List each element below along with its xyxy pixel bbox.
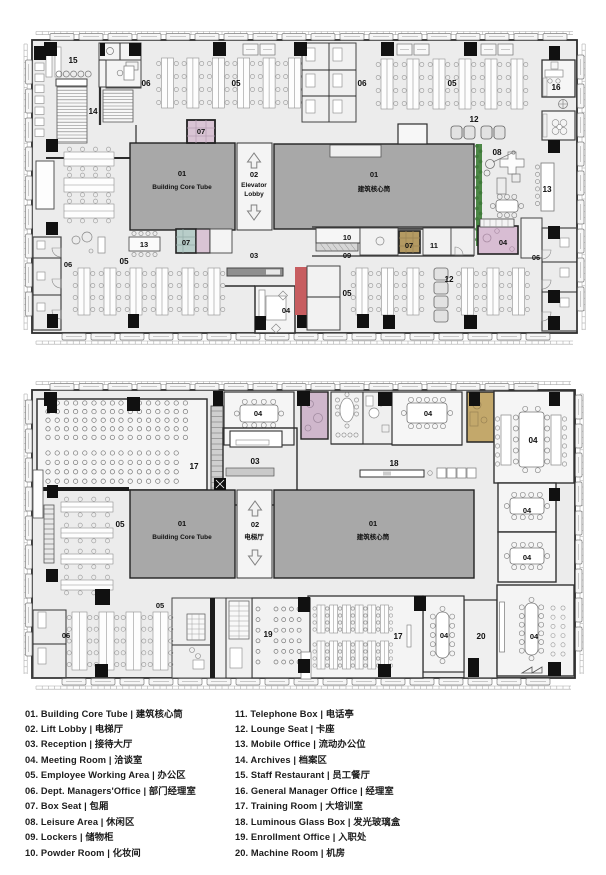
svg-text:03: 03 [250, 251, 258, 260]
svg-text:01: 01 [370, 170, 378, 179]
svg-text:04: 04 [440, 631, 449, 640]
svg-text:12: 12 [469, 115, 479, 124]
svg-text:04: 04 [254, 409, 263, 418]
svg-text:01: 01 [369, 519, 377, 528]
svg-text:Lobby: Lobby [244, 191, 264, 198]
svg-text:02: 02 [251, 520, 259, 529]
svg-text:03: 03 [250, 457, 260, 466]
svg-text:17: 17 [189, 462, 199, 471]
svg-text:16: 16 [551, 83, 561, 92]
svg-text:13: 13 [140, 240, 148, 249]
svg-text:04: 04 [499, 238, 508, 247]
svg-text:07: 07 [197, 127, 205, 136]
svg-text:20: 20 [476, 632, 486, 641]
svg-text:05: 05 [231, 79, 241, 88]
svg-text:09: 09 [343, 251, 351, 260]
svg-text:08: 08 [492, 148, 502, 157]
svg-text:15: 15 [68, 56, 78, 65]
svg-text:06: 06 [62, 631, 70, 640]
svg-text:Building Core Tube: Building Core Tube [152, 534, 212, 541]
svg-text:建筑核心筒: 建筑核心筒 [356, 532, 390, 541]
svg-text:13: 13 [542, 185, 552, 194]
svg-text:17: 17 [393, 632, 403, 641]
svg-text:01: 01 [178, 519, 186, 528]
svg-text:06: 06 [532, 253, 540, 262]
svg-text:Building Core Tube: Building Core Tube [152, 184, 212, 191]
svg-text:05: 05 [342, 289, 352, 298]
svg-text:04: 04 [424, 409, 433, 418]
svg-text:04: 04 [528, 436, 538, 445]
svg-text:14: 14 [88, 107, 98, 116]
svg-text:19: 19 [263, 630, 273, 639]
svg-text:12: 12 [444, 275, 454, 284]
svg-text:01: 01 [178, 169, 186, 178]
svg-text:电梯厅: 电梯厅 [244, 532, 264, 541]
svg-text:05: 05 [447, 79, 457, 88]
svg-text:07: 07 [182, 238, 190, 247]
svg-text:06: 06 [357, 79, 367, 88]
svg-text:10: 10 [343, 233, 351, 242]
svg-text:04: 04 [523, 553, 532, 562]
svg-text:05: 05 [115, 520, 125, 529]
svg-text:02: 02 [250, 170, 258, 179]
svg-text:05: 05 [156, 601, 164, 610]
svg-text:11: 11 [430, 241, 438, 250]
svg-text:06: 06 [64, 260, 72, 269]
svg-text:Elevator: Elevator [241, 182, 267, 189]
svg-text:04: 04 [282, 306, 291, 315]
svg-text:04: 04 [523, 506, 532, 515]
svg-text:06: 06 [141, 79, 151, 88]
svg-text:05: 05 [119, 257, 129, 266]
svg-text:04: 04 [530, 632, 539, 641]
svg-text:07: 07 [405, 241, 413, 250]
svg-text:建筑核心筒: 建筑核心筒 [357, 184, 391, 193]
svg-text:18: 18 [389, 459, 399, 468]
